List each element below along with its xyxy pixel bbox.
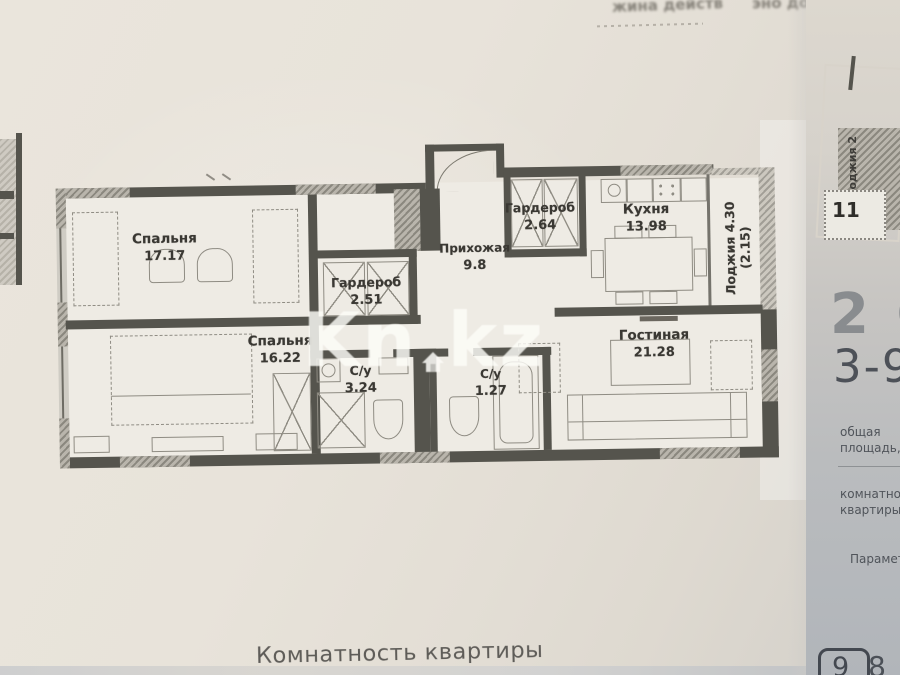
room-label: Лоджия 4.30 (2.15) [722, 198, 754, 298]
wall [505, 248, 587, 257]
dining-table-icon [604, 237, 693, 292]
bleed-dotted-line [597, 23, 703, 28]
room-label: Гардероб2.64 [505, 198, 576, 234]
wall [620, 164, 712, 175]
bed-icon [72, 212, 119, 307]
sink-icon [601, 179, 627, 203]
wall [420, 189, 441, 251]
wall [758, 167, 776, 309]
room-label: Кухня13.98 [623, 201, 670, 236]
wall [56, 188, 67, 228]
chair-icon [591, 250, 604, 278]
toilet-icon [449, 396, 480, 436]
sofa-icon [567, 392, 748, 441]
house-icon [421, 350, 445, 374]
bottom-shadow-band [0, 666, 900, 675]
wall [425, 145, 435, 193]
vent-mark-icon [222, 173, 231, 180]
wall [394, 189, 421, 251]
wall [380, 451, 450, 463]
wardrobe-icon [273, 373, 312, 452]
bed-icon [252, 209, 299, 304]
wall [660, 447, 740, 459]
wall [578, 174, 586, 256]
double-bed-icon [110, 334, 253, 426]
stove-icon [653, 178, 681, 202]
chair-icon [649, 291, 677, 304]
listing-headline: 2 С [830, 282, 900, 347]
dresser-icon [152, 436, 224, 452]
caption: Комнатность квартиры [256, 637, 544, 669]
floor-plan-photo: жина действ эно до [0, 0, 900, 675]
adjacent-plan-sliver [0, 133, 26, 293]
entry-door-arc-icon [436, 150, 494, 192]
nightstand-icon [74, 436, 110, 454]
wall [317, 249, 417, 259]
chair-icon [615, 291, 643, 304]
toilet-icon [373, 399, 404, 439]
wall [64, 187, 130, 198]
wall [120, 456, 190, 468]
room-label: Прихожая9.8 [439, 239, 510, 274]
room-label: Гостиная21.28 [619, 327, 690, 362]
bleed-text-center: жина действ [612, 0, 724, 16]
armchair-icon [710, 340, 753, 391]
wall [296, 184, 376, 195]
badge-number: 9 [832, 652, 849, 675]
room-label: Спальня17.17 [132, 230, 197, 265]
field-label-parameter: Параметр [850, 552, 900, 566]
listing-subheadline: 3-9 [833, 340, 900, 393]
chair-icon [197, 248, 234, 283]
area-value: 8 7 [867, 649, 900, 675]
kitchen-cabinet-icon [627, 178, 653, 202]
field-label-rooms: комнатностьквартиры [840, 486, 900, 518]
vent-mark-icon [206, 174, 215, 181]
shower-icon [317, 392, 366, 449]
fridge-icon [681, 177, 707, 201]
chair-icon [694, 248, 707, 276]
wall [59, 418, 70, 468]
wall [761, 349, 778, 401]
field-label-total-area: общаяплощадь, м [840, 424, 900, 456]
watermark: Knkz [302, 296, 545, 384]
